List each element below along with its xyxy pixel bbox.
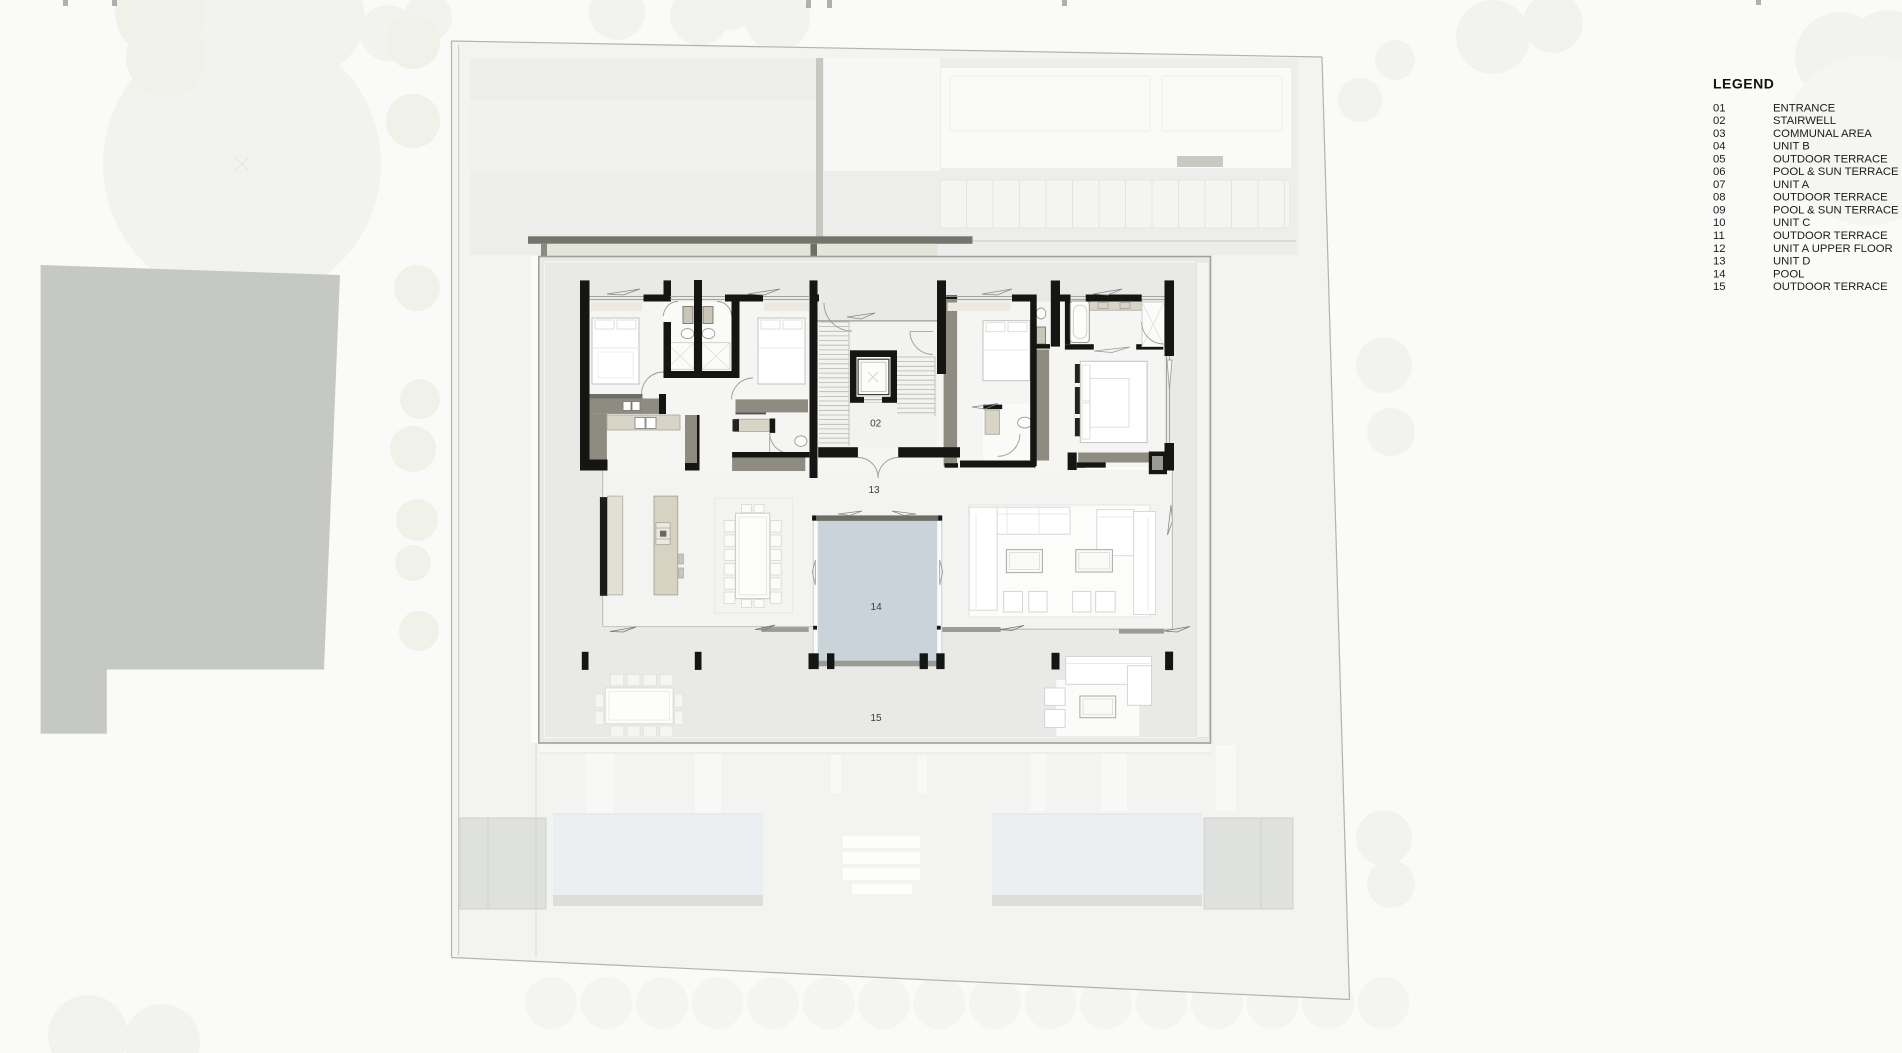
svg-text:OUTDOOR TERRACE: OUTDOOR TERRACE	[1773, 230, 1888, 242]
svg-text:POOL & SUN TERRACE: POOL & SUN TERRACE	[1773, 205, 1899, 217]
svg-text:14: 14	[1713, 268, 1726, 280]
svg-text:12: 12	[1713, 243, 1726, 255]
svg-text:09: 09	[1713, 205, 1726, 217]
svg-text:04: 04	[1713, 141, 1726, 153]
svg-text:OUTDOOR TERRACE: OUTDOOR TERRACE	[1773, 281, 1888, 293]
svg-text:COMMUNAL AREA: COMMUNAL AREA	[1773, 128, 1872, 140]
svg-text:13: 13	[868, 485, 880, 496]
svg-text:UNIT A UPPER FLOOR: UNIT A UPPER FLOOR	[1773, 243, 1893, 255]
svg-text:OUTDOOR TERRACE: OUTDOOR TERRACE	[1773, 153, 1888, 165]
svg-text:POOL: POOL	[1773, 268, 1804, 280]
svg-text:13: 13	[1713, 256, 1726, 268]
svg-text:10: 10	[1713, 217, 1726, 229]
svg-text:UNIT B: UNIT B	[1773, 141, 1810, 153]
svg-text:UNIT D: UNIT D	[1773, 256, 1810, 268]
svg-text:UNIT A: UNIT A	[1773, 179, 1810, 191]
svg-text:01: 01	[1713, 102, 1726, 114]
svg-text:05: 05	[1713, 153, 1726, 165]
svg-text:07: 07	[1713, 179, 1726, 191]
svg-text:08: 08	[1713, 192, 1726, 204]
svg-text:UNIT C: UNIT C	[1773, 217, 1810, 229]
svg-text:15: 15	[870, 713, 882, 724]
svg-text:LEGEND: LEGEND	[1713, 76, 1774, 92]
svg-text:OUTDOOR TERRACE: OUTDOOR TERRACE	[1773, 192, 1888, 204]
svg-text:11: 11	[1713, 230, 1725, 242]
svg-text:03: 03	[1713, 128, 1726, 140]
svg-text:ENTRANCE: ENTRANCE	[1773, 102, 1836, 114]
svg-text:06: 06	[1713, 166, 1726, 178]
svg-text:STAIRWELL: STAIRWELL	[1773, 115, 1836, 127]
svg-text:14: 14	[871, 602, 883, 613]
svg-text:POOL & SUN TERRACE: POOL & SUN TERRACE	[1773, 166, 1899, 178]
svg-text:02: 02	[1713, 115, 1726, 127]
svg-text:15: 15	[1713, 281, 1726, 293]
svg-text:02: 02	[870, 419, 882, 430]
